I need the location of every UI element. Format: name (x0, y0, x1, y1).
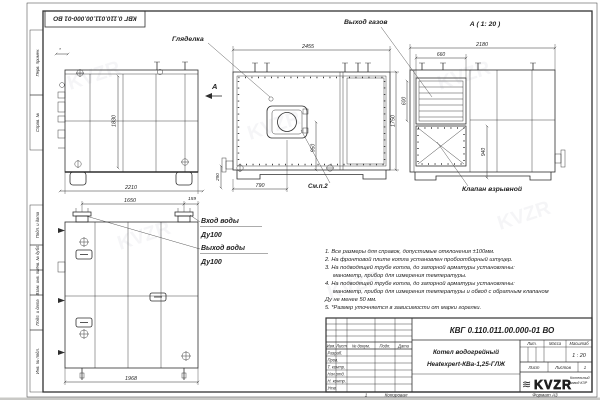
tb-row-razrab: Разраб. (328, 351, 343, 356)
note-line-1: 1. Все размеры для справок, допустимые о… (325, 249, 495, 255)
dim-600: 600 (402, 97, 408, 106)
logo-sub-line1: Котельный (570, 376, 590, 380)
logo-wave-icon: ≋ (522, 379, 531, 391)
dim-159: 159 (188, 196, 196, 202)
tb-row-prov: Пров. (328, 358, 339, 363)
note-line-8: 5. *Размер уточняется в зависимости от м… (325, 305, 481, 311)
tb-col-podp: Подп. (380, 344, 391, 349)
dim-1750: 1750 (391, 115, 397, 127)
dim-1968: 1968 (125, 376, 137, 382)
view-a-title: А ( 1: 20 ) (469, 21, 501, 28)
stamp-doc-number: КВГ 0.110.011.00.000-01 ВО (53, 15, 137, 22)
margin-label-sprav-no: Справ. № (35, 113, 40, 132)
dim-1830: 1830 (112, 115, 118, 127)
footer-format-label: Формат А3 (532, 393, 558, 398)
dim-2455: 2455 (301, 44, 315, 50)
tb-product-line1: Котел водогрейный (433, 348, 499, 356)
tb-massa-header: Масса (549, 341, 562, 346)
note-line-5: 4. На подводящей трубе котла, до запорно… (325, 280, 515, 287)
svg-text:KVZR: KVZR (245, 107, 304, 145)
note-line-4: манометр, прибор для измерения температу… (333, 273, 467, 279)
title-block: Изм. Лист № докум. Подп. Дата Разраб. Пр… (326, 318, 592, 392)
boiler-drawing: KVZR KVZR KVZR KVZR KVZR KVZR Перв. прим… (0, 0, 600, 400)
dim-star: * (59, 47, 61, 52)
dim-1650: 1650 (124, 198, 136, 204)
tb-masshtab-header: Масштаб (569, 341, 589, 346)
dim-940: 940 (481, 148, 487, 157)
label-water-out-dn: Ду100 (200, 259, 222, 266)
margin-label-perv-primen: Перв. примен. (35, 49, 40, 77)
tb-lit-header: Лит. (526, 341, 537, 346)
side-foot-right (176, 172, 192, 185)
tb-col-dokum: № докум. (352, 344, 370, 349)
tb-col-data: Дата (397, 344, 410, 349)
tb-scale-value: 1 : 20 (572, 353, 587, 359)
svg-text:KVZR: KVZR (435, 57, 494, 95)
tb-col-list: Лист (335, 344, 347, 349)
stamp-rotated: КВГ 0.110.011.00.000-01 ВО (45, 11, 145, 27)
label-water-in-dn: Ду100 (200, 232, 222, 239)
view-arrow-a: А (205, 82, 222, 99)
note-line-2: 2. На фронтовой плите котла установлен п… (324, 256, 513, 263)
label-see-note-2: См.п.2 (308, 183, 328, 190)
tb-sheet-label: Лист (527, 365, 539, 370)
svg-text:KVZR: KVZR (65, 57, 124, 95)
logo-kvzr-text: KVZR (534, 378, 572, 392)
margin-label-inv-podl: Инв. № подл. (35, 348, 40, 374)
company-logo: ≋ KVZR Котельный завод КЗР (522, 376, 590, 392)
tb-product-line2: Heatexpert-КВа-1,25-ГЛЖ (427, 361, 506, 368)
tb-row-nachotd: Нач.отд. (328, 372, 345, 377)
tb-row-tkontr: Т. контр. (328, 365, 346, 370)
tb-col-izm: Изм. (327, 344, 336, 349)
note-line-6: манометр, прибор для измерения температу… (333, 289, 549, 295)
explosion-valve-panel (416, 126, 466, 166)
tb-row-utv: Утв. (328, 386, 337, 391)
tb-sheets-label: Листов (554, 365, 571, 370)
sheet-frame (0, 3, 600, 400)
tb-sheets-value: 1 (584, 365, 587, 370)
note-line-3: 3. На подводящей трубе котла, до запорно… (325, 264, 515, 271)
sight-glass-mark (269, 97, 273, 101)
footer-zone-marker: 1 (365, 393, 368, 398)
svg-text:KVZR: KVZR (115, 217, 174, 255)
margin-label-vzam-inv: Взам. инв. № (35, 269, 40, 295)
label-explosion-valve: Клапан взрывной (462, 185, 523, 193)
label-gas-outlet: Выход газов (344, 18, 388, 26)
logo-sub-line2: завод КЗР (569, 381, 588, 385)
side-foot-left (70, 172, 86, 185)
view-a: А ( 1: 20 ) Выход газов (344, 18, 565, 193)
label-water-in: Вход воды (201, 217, 239, 225)
tb-doc-number: КВГ 0.110.011.00.000-01 ВО (450, 326, 555, 335)
margin-label-podp-data-1: Подп. и дата (35, 211, 40, 238)
label-sight-glass: Гляделка (172, 35, 204, 43)
margin-label-inv-dubl: Инв. № дубл. (35, 245, 40, 271)
tb-row-nkontr: Н. контр. (328, 379, 346, 384)
dim-290: 290 (215, 173, 220, 182)
svg-text:KVZR: KVZR (495, 197, 554, 235)
dim-790: 790 (256, 183, 265, 189)
margin-label-podp-data-2: Подп. и дата (35, 299, 40, 326)
drawing-sheet: KVZR KVZR KVZR KVZR KVZR KVZR Перв. прим… (0, 0, 600, 400)
water-labels: Вход воды Ду100 Выход воды Ду100 (86, 215, 268, 266)
footer-copied-label: Копировал (385, 393, 408, 398)
label-water-out: Выход воды (201, 244, 245, 252)
dim-2210: 2210 (124, 185, 137, 191)
view-arrow-label: А (211, 82, 217, 91)
dim-950: 950 (311, 144, 317, 153)
margin-labels: Перв. примен. Справ. № Подп. и дата Инв.… (30, 30, 43, 392)
dim-2180: 2180 (475, 42, 488, 48)
note-line-7: Ду не менее 50 мм. (324, 297, 377, 303)
dim-660: 660 (437, 52, 446, 58)
